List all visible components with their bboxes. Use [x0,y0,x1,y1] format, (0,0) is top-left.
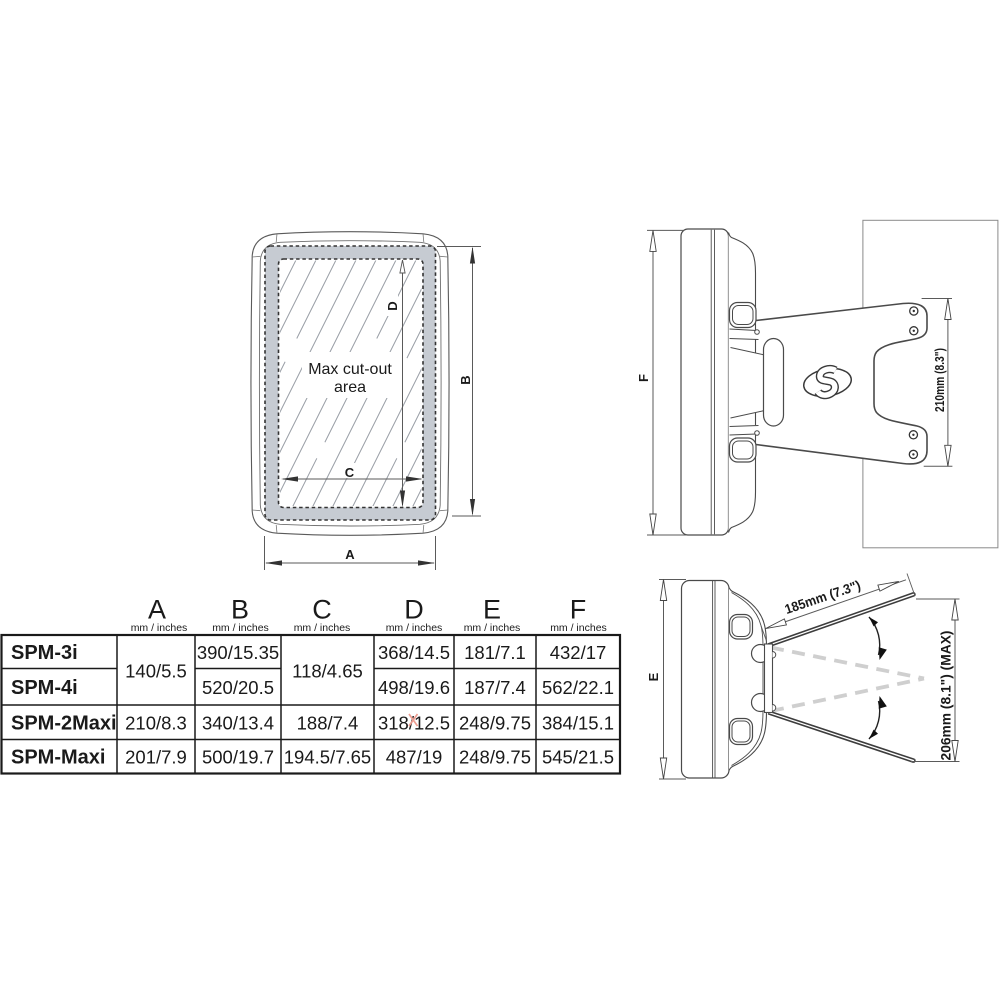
svg-text:SPM-4i: SPM-4i [11,677,78,699]
svg-text:187/7.4: 187/7.4 [464,677,526,698]
svg-text:500/19.7: 500/19.7 [202,747,274,768]
svg-text:487/19: 487/19 [386,747,443,768]
svg-text:118/4.65: 118/4.65 [292,661,363,682]
svg-text:Max cut-out: Max cut-out [308,361,392,378]
svg-text:SPM-Maxi: SPM-Maxi [11,747,105,769]
svg-text:545/21.5: 545/21.5 [542,747,614,768]
svg-text:A: A [148,595,166,625]
svg-text:188/7.4: 188/7.4 [297,713,359,734]
svg-text:432/17: 432/17 [550,642,607,663]
svg-text:206mm (8.1") (MAX): 206mm (8.1") (MAX) [939,631,954,761]
svg-text:F: F [570,595,587,625]
svg-text:384/15.1: 384/15.1 [542,713,614,734]
svg-text:D: D [404,595,424,625]
svg-text:C: C [345,465,355,480]
svg-text:201/7.9: 201/7.9 [125,747,187,768]
svg-text:C: C [312,595,332,625]
svg-text:mm / inches: mm / inches [550,622,607,634]
svg-text:194.5/7.65: 194.5/7.65 [284,747,371,768]
svg-text:368/14.5: 368/14.5 [378,642,450,663]
svg-text:562/22.1: 562/22.1 [542,677,614,698]
svg-text:mm / inches: mm / inches [212,622,269,634]
svg-text:140/5.5: 140/5.5 [125,661,187,682]
svg-text:mm / inches: mm / inches [131,622,188,634]
svg-text:B: B [458,375,473,384]
svg-text:181/7.1: 181/7.1 [464,642,526,663]
svg-text:210/8.3: 210/8.3 [125,713,187,734]
svg-text:B: B [231,595,249,625]
svg-text:318/12.5: 318/12.5 [378,713,450,734]
svg-text:340/13.4: 340/13.4 [202,713,274,734]
svg-text:210mm (8.3"): 210mm (8.3") [933,348,947,412]
svg-text:D: D [385,301,400,310]
svg-text:mm / inches: mm / inches [464,622,521,634]
svg-text:SPM-3i: SPM-3i [11,642,78,664]
svg-text:248/9.75: 248/9.75 [459,713,531,734]
svg-text:area: area [334,379,366,396]
svg-text:SPM-2Maxi: SPM-2Maxi [11,713,117,735]
svg-text:185mm (7.3"): 185mm (7.3") [783,578,863,617]
svg-text:E: E [483,595,501,625]
svg-text:F: F [636,374,651,382]
svg-text:E: E [646,672,661,681]
svg-text:520/20.5: 520/20.5 [202,677,274,698]
svg-text:498/19.6: 498/19.6 [378,677,450,698]
svg-text:248/9.75: 248/9.75 [459,747,531,768]
svg-text:mm / inches: mm / inches [386,622,443,634]
svg-text:mm / inches: mm / inches [294,622,351,634]
svg-text:A: A [345,547,355,562]
svg-text:390/15.35: 390/15.35 [197,642,279,663]
